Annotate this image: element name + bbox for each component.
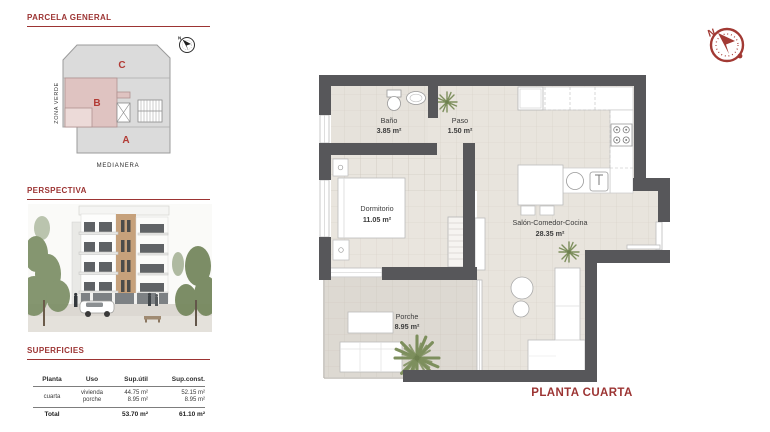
siteplan-compass-icon: N bbox=[178, 36, 195, 53]
siteplan-block-c-label: C bbox=[118, 60, 125, 71]
svg-text:28.35 m²: 28.35 m² bbox=[536, 229, 565, 238]
stove bbox=[611, 124, 632, 146]
compass-north-label: N bbox=[707, 27, 717, 40]
perspective-image bbox=[28, 204, 212, 332]
svg-text:1.50 m²: 1.50 m² bbox=[448, 126, 473, 135]
floorplan-title: PLANTA CUARTA bbox=[530, 387, 634, 399]
toilet bbox=[387, 90, 401, 111]
nightstand-bottom bbox=[333, 240, 349, 260]
surfaces-table-total-row: Total 53.70 m² 61.10 m² bbox=[33, 411, 205, 418]
col-header-planta: Planta bbox=[33, 376, 71, 383]
col-header-sup-const: Sup.const. bbox=[148, 376, 205, 383]
col-header-sup-util: Sup.útil bbox=[113, 376, 148, 383]
siteplan-block-b-label: B bbox=[93, 98, 100, 109]
porch-sofa bbox=[340, 342, 402, 372]
svg-text:Porche: Porche bbox=[396, 312, 419, 321]
svg-text:Paso: Paso bbox=[452, 116, 468, 125]
svg-text:Dormitorio: Dormitorio bbox=[360, 204, 393, 213]
superficies-header: SUPERFICIES bbox=[27, 346, 210, 360]
nightstand-top bbox=[333, 159, 348, 176]
svg-text:8.95 m²: 8.95 m² bbox=[395, 322, 420, 331]
fridge bbox=[518, 87, 543, 110]
table-rule bbox=[33, 386, 205, 387]
wardrobe bbox=[448, 217, 465, 267]
svg-text:11.05 m²: 11.05 m² bbox=[363, 215, 392, 224]
cell-total-const: 61.10 m² bbox=[148, 411, 205, 418]
medianera-label: MEDIANERA bbox=[97, 163, 140, 169]
cell-const-2: 8.95 m² bbox=[148, 397, 205, 404]
compass-icon: N bbox=[704, 22, 750, 68]
perspectiva-title: PERSPECTIVA bbox=[27, 186, 87, 195]
zona-verde-label: ZONA VERDE bbox=[54, 82, 60, 123]
cell-uso-1: vivienda bbox=[71, 390, 113, 397]
surfaces-table-header-row: Planta Uso Sup.útil Sup.const. bbox=[33, 376, 205, 383]
room-label-porche: Porche 8.95 m² bbox=[395, 312, 420, 331]
cell-uso-2: porche bbox=[71, 397, 113, 404]
table-rule bbox=[33, 407, 205, 408]
plant-icon bbox=[437, 92, 457, 112]
building-illustration bbox=[72, 206, 169, 304]
cell-total-label: Total bbox=[33, 411, 71, 418]
surfaces-table-row: cuarta vivienda porche 44.75 m² 8.95 m² … bbox=[33, 390, 205, 404]
cell-planta: cuarta bbox=[33, 394, 71, 401]
plan-sheet-page: PARCELA GENERAL bbox=[0, 0, 770, 432]
cell-const-1: 52.15 m² bbox=[148, 390, 205, 397]
bathroom-sink bbox=[407, 92, 426, 105]
svg-text:Salón-Comedor-Cocina: Salón-Comedor-Cocina bbox=[512, 218, 587, 227]
parcela-general-header: PARCELA GENERAL bbox=[27, 13, 210, 27]
perspectiva-header: PERSPECTIVA bbox=[27, 186, 210, 200]
cell-util-2: 8.95 m² bbox=[113, 397, 148, 404]
col-header-uso: Uso bbox=[71, 376, 113, 383]
site-plan: C B A ZONA VERDE MEDIANERA N bbox=[50, 30, 200, 172]
cell-total-util: 53.70 m² bbox=[113, 411, 148, 418]
porch-table bbox=[348, 312, 393, 333]
svg-text:Baño: Baño bbox=[381, 116, 398, 125]
siteplan-elevator bbox=[117, 103, 130, 122]
siteplan-block-a-label: A bbox=[122, 135, 129, 146]
surfaces-table: Planta Uso Sup.útil Sup.const. cuarta vi… bbox=[33, 376, 205, 418]
siteplan-stairs bbox=[138, 100, 162, 122]
cell-util-1: 44.75 m² bbox=[113, 390, 148, 397]
svg-text:3.85 m²: 3.85 m² bbox=[377, 126, 402, 135]
floor-plan: Baño 3.85 m² Paso 1.50 m² Dormitorio 11.… bbox=[312, 62, 672, 402]
siteplan-north-label: N bbox=[178, 36, 181, 41]
plant-icon bbox=[559, 242, 579, 262]
parcela-general-title: PARCELA GENERAL bbox=[27, 13, 111, 22]
superficies-title: SUPERFICIES bbox=[27, 346, 84, 355]
